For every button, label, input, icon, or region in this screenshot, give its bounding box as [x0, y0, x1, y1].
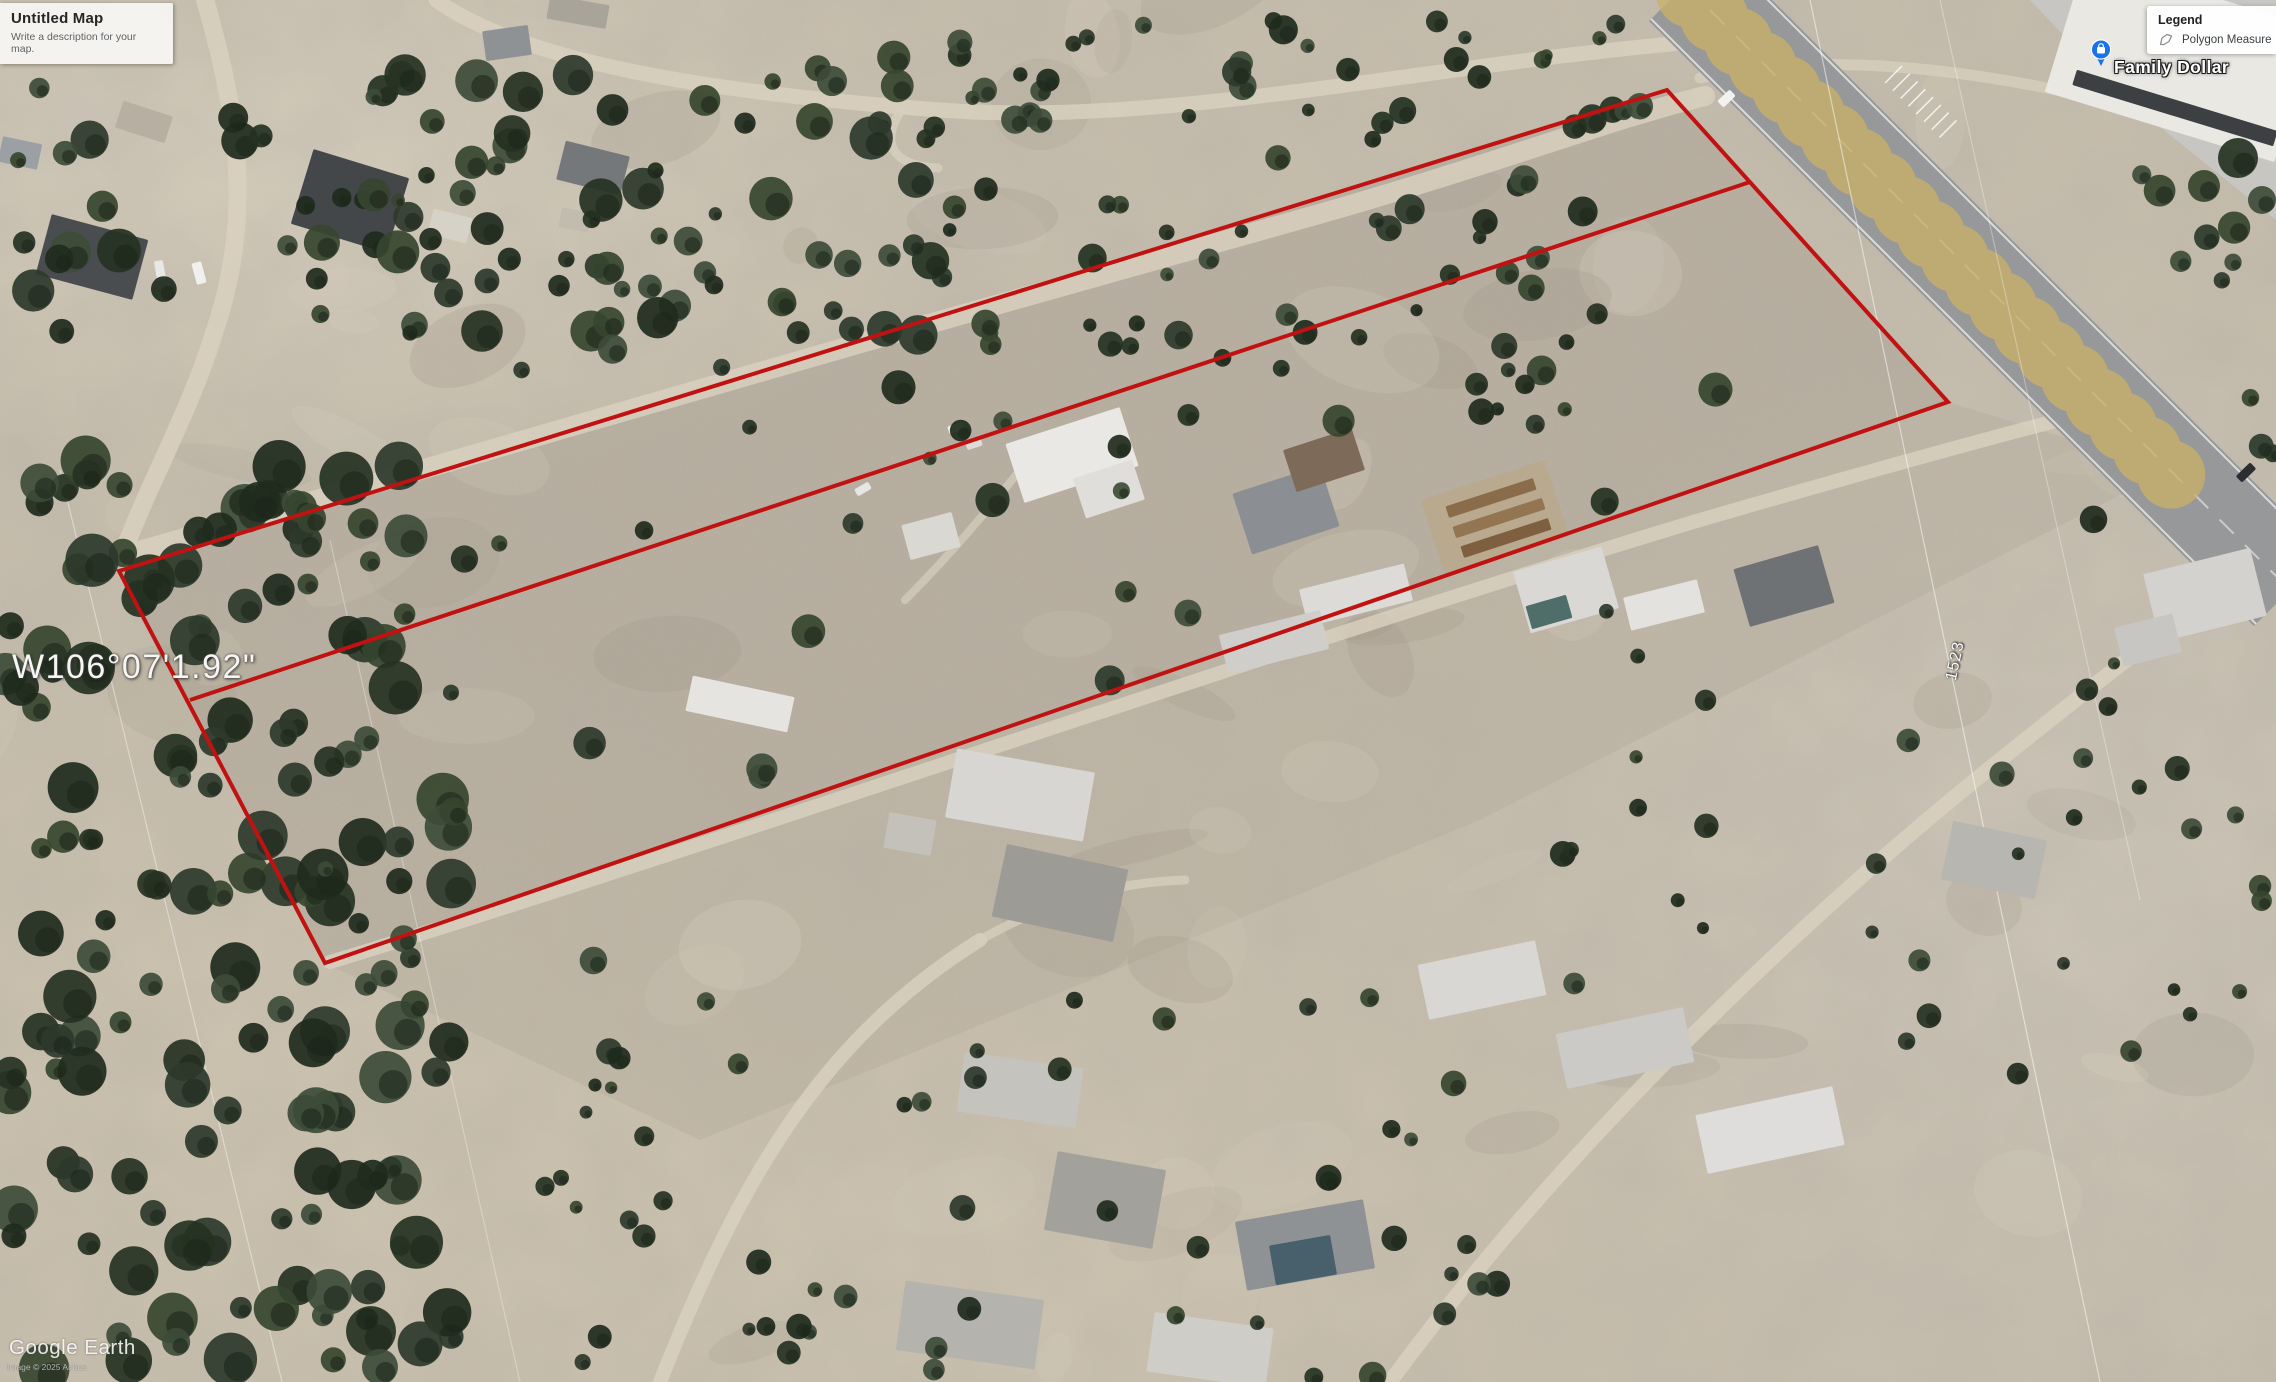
legend-title: Legend [2158, 13, 2276, 27]
imagery-attribution: Image © 2025 Airbus [7, 1362, 87, 1372]
google-earth-viewport: Untitled Map Write a description for you… [0, 0, 2276, 1382]
legend-card: Legend Polygon Measure [2147, 6, 2276, 54]
google-earth-watermark: Google Earth [9, 1336, 136, 1360]
place-label[interactable]: Family Dollar [2114, 57, 2229, 78]
map-description[interactable]: Write a description for your map. [11, 31, 161, 55]
legend-item-polygon-measure[interactable]: Polygon Measure [2158, 33, 2276, 46]
family-dollar-pin[interactable] [2090, 39, 2112, 67]
coordinate-readout: W106°07'1.92" [12, 648, 256, 687]
map-info-card[interactable]: Untitled Map Write a description for you… [0, 3, 173, 64]
satellite-map-canvas[interactable] [0, 0, 2276, 1382]
legend-item-label: Polygon Measure [2182, 34, 2272, 46]
map-title[interactable]: Untitled Map [11, 10, 161, 27]
polygon-outline-icon [2158, 33, 2175, 46]
